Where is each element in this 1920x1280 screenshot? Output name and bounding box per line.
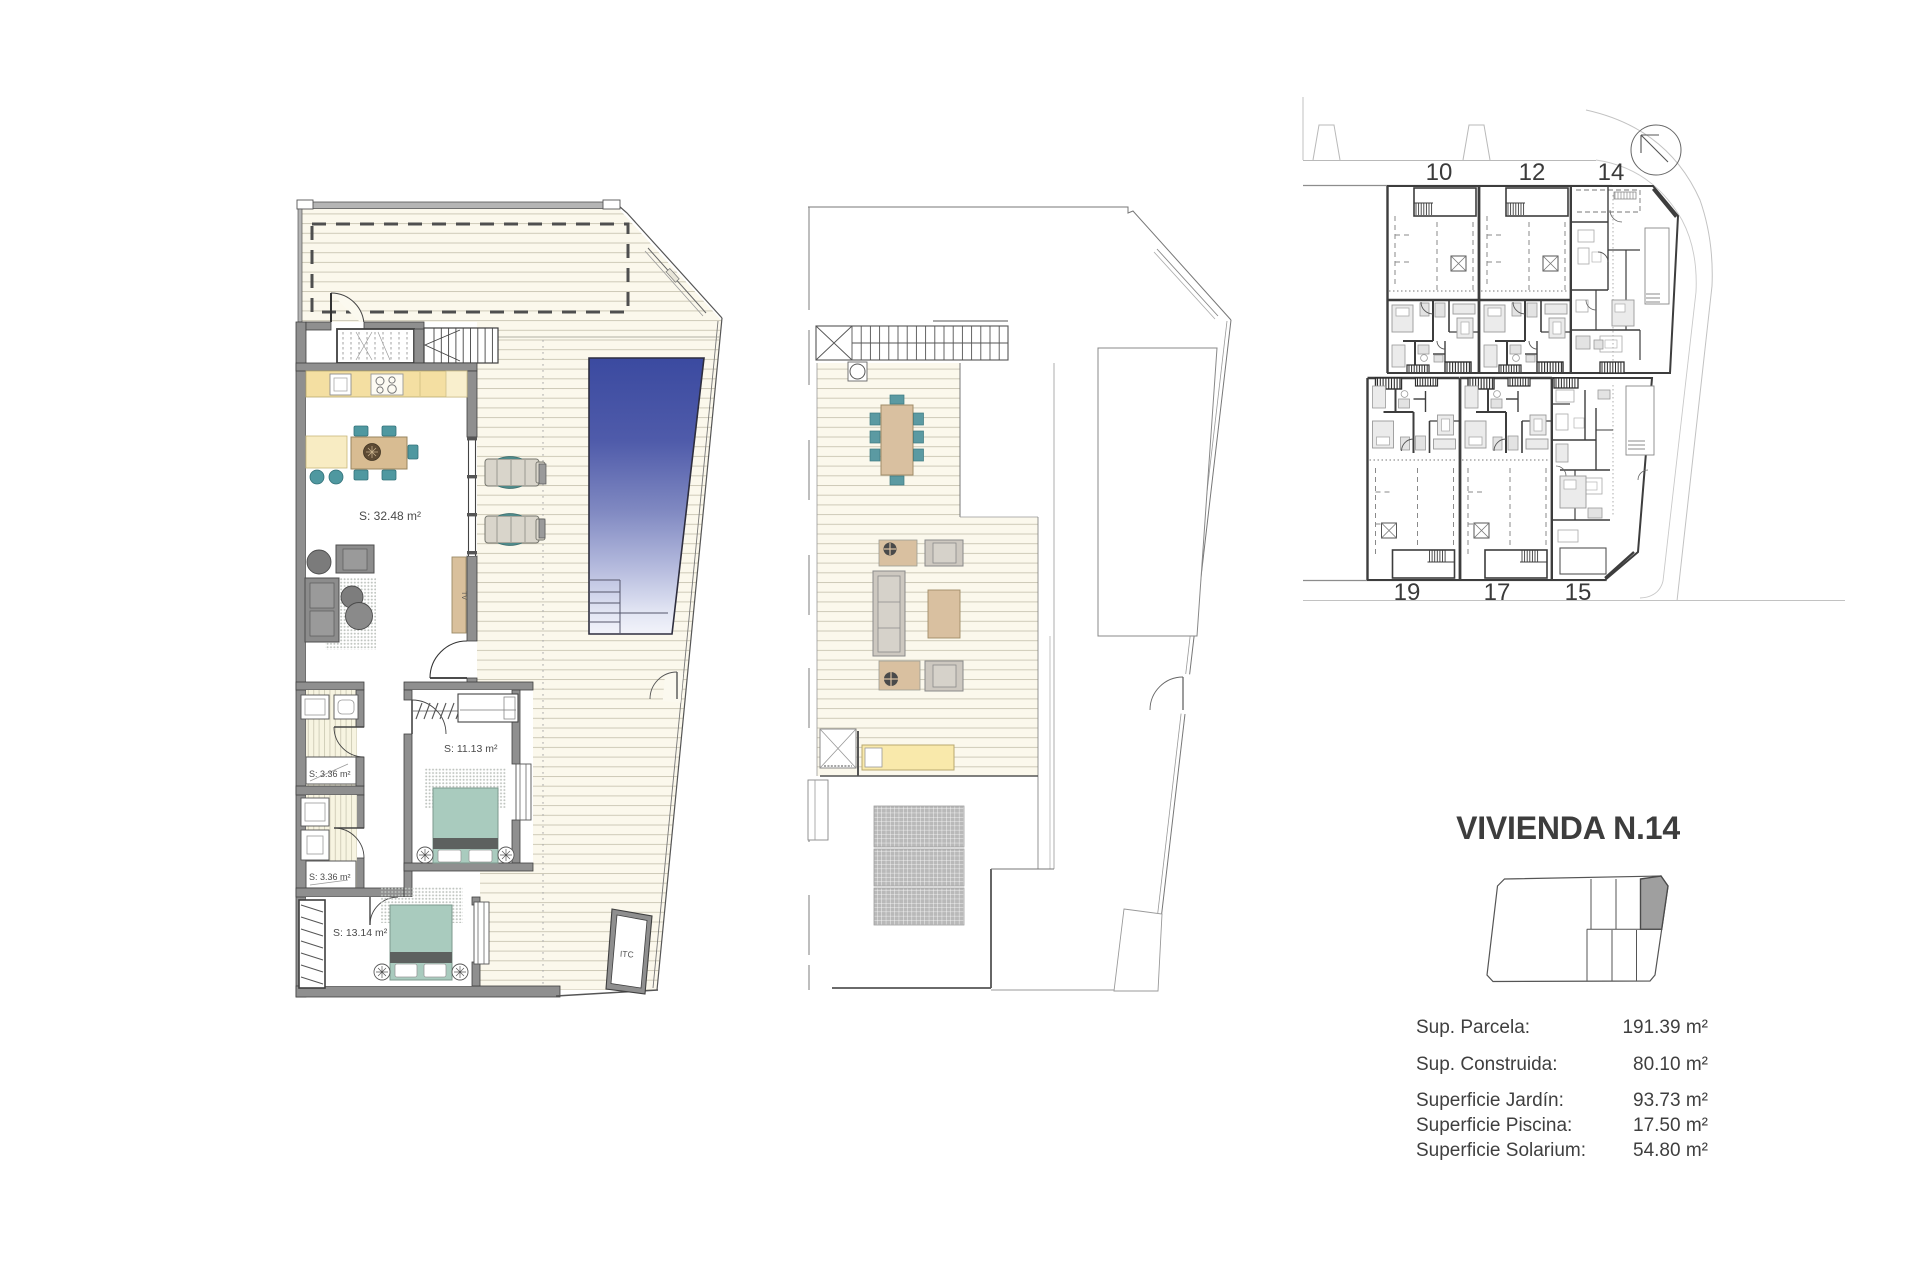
svg-text:ITC: ITC <box>620 949 634 960</box>
svg-text:S: 32.48 m²: S: 32.48 m² <box>359 509 421 523</box>
svg-text:17.50 m²: 17.50 m² <box>1633 1115 1708 1136</box>
svg-text:S: 13.14 m²: S: 13.14 m² <box>333 927 388 939</box>
svg-text:14: 14 <box>1598 159 1625 186</box>
svg-text:TV: TV <box>460 591 467 600</box>
svg-text:80.10 m²: 80.10 m² <box>1633 1054 1708 1075</box>
svg-text:10: 10 <box>1426 159 1453 186</box>
svg-text:191.39 m²: 191.39 m² <box>1622 1017 1708 1038</box>
svg-text:Sup. Construida:: Sup. Construida: <box>1416 1054 1558 1075</box>
svg-text:VIVIENDA N.14: VIVIENDA N.14 <box>1456 810 1680 846</box>
svg-text:S: 3.36 m²: S: 3.36 m² <box>309 769 351 779</box>
svg-text:Superficie Piscina:: Superficie Piscina: <box>1416 1115 1572 1136</box>
svg-text:S: 3.36 m²: S: 3.36 m² <box>309 872 351 882</box>
svg-text:S: 11.13 m²: S: 11.13 m² <box>444 743 498 755</box>
svg-text:93.73 m²: 93.73 m² <box>1633 1090 1708 1111</box>
svg-text:15: 15 <box>1565 579 1592 606</box>
svg-text:Superficie Jardín:: Superficie Jardín: <box>1416 1090 1564 1111</box>
svg-text:Superficie Solarium:: Superficie Solarium: <box>1416 1140 1586 1161</box>
svg-text:54.80 m²: 54.80 m² <box>1633 1140 1708 1161</box>
svg-text:17: 17 <box>1484 579 1511 606</box>
svg-text:19: 19 <box>1394 579 1421 606</box>
svg-text:Sup. Parcela:: Sup. Parcela: <box>1416 1017 1530 1038</box>
svg-text:12: 12 <box>1519 159 1546 186</box>
